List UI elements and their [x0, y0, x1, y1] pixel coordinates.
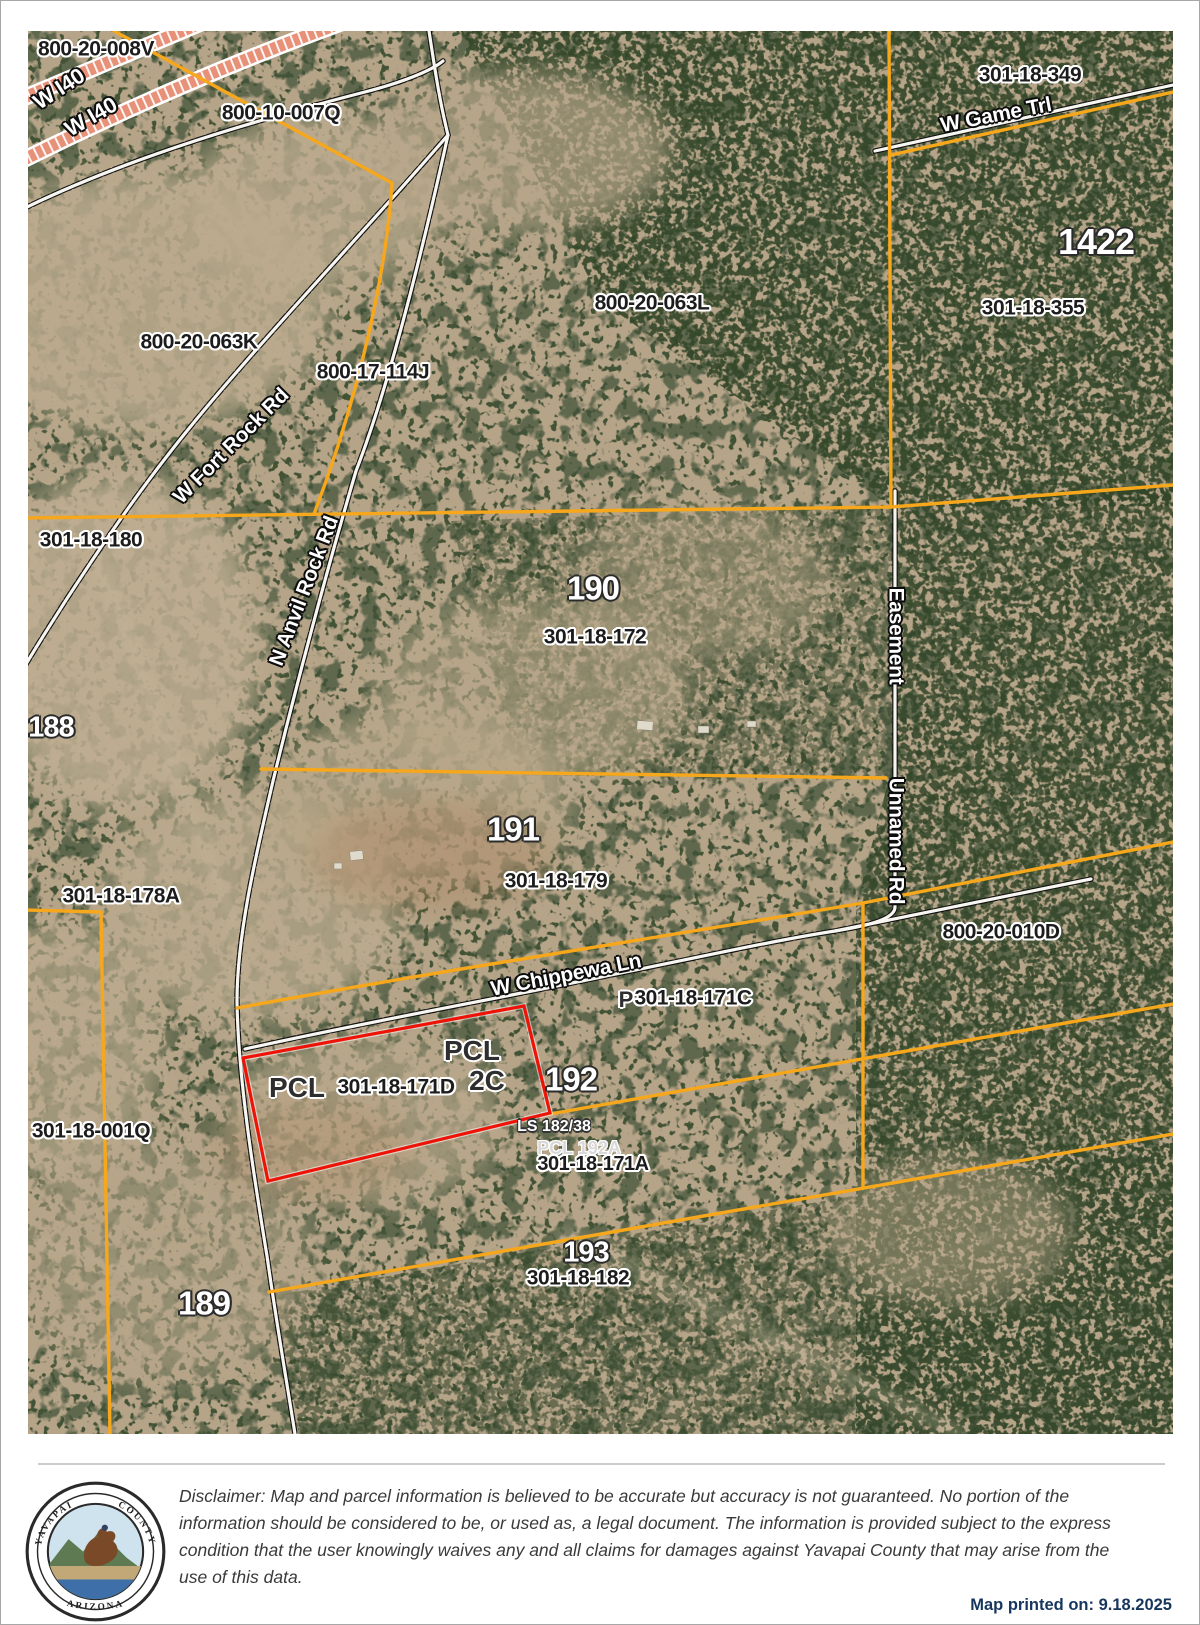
parcel-label-301-18-172: 301-18-172 — [544, 627, 646, 648]
section-label-189: 189 — [178, 1287, 230, 1320]
pcl-label-prefix-p: P — [619, 989, 634, 1011]
section-label-191: 191 — [487, 813, 539, 846]
section-label-1422: 1422 — [1058, 224, 1134, 260]
disclaimer-line-2: information should be considered to be, … — [179, 1510, 1179, 1537]
parcel-label-800-20-008V: 800-20-008V — [38, 39, 154, 60]
section-label-190: 190 — [567, 572, 619, 605]
aerial-basemap — [28, 31, 1173, 1434]
pcl-label-left: PCL — [269, 1074, 325, 1102]
parcel-label-301-18-171C: 301-18-171C — [634, 988, 751, 1009]
pcl-label-tail-2c: 2C — [469, 1067, 505, 1095]
disclaimer-line-1: Disclaimer: Map and parcel information i… — [179, 1483, 1179, 1510]
disclaimer-line-4: use of this data. — [179, 1564, 1179, 1591]
footer-divider — [38, 1463, 1165, 1465]
parcel-label-800-20-063K: 800-20-063K — [140, 332, 257, 353]
parcel-label-301-18-179: 301-18-179 — [505, 871, 607, 892]
road-label-unnamed-rd: Unnamed Rd — [886, 778, 907, 905]
pcl-label-upper: PCL — [444, 1037, 500, 1065]
parcel-label-301-18-180: 301-18-180 — [40, 530, 142, 551]
road-label-easement: Easement — [886, 588, 907, 685]
parcel-label-301-18-349: 301-18-349 — [979, 65, 1081, 86]
parcel-label-301-18-171A: 301-18-171A — [537, 1154, 648, 1174]
parcel-label-301-18-355: 301-18-355 — [982, 298, 1084, 319]
disclaimer-text: Disclaimer: Map and parcel information i… — [179, 1483, 1179, 1591]
parcel-label-800-20-010D: 800-20-010D — [942, 922, 1059, 943]
parcel-label-800-17-114J: 800-17-114J — [317, 362, 429, 383]
parcel-label-301-18-171D: 301-18-171D — [337, 1077, 454, 1098]
yavapai-county-seal-icon: YAVAPAI COUNTY ARIZONA — [23, 1479, 168, 1624]
section-label-188: 188 — [28, 714, 73, 743]
land-split-ref-label: LS 182/38 — [517, 1119, 591, 1135]
map-canvas — [28, 31, 1173, 1434]
section-label-193: 193 — [563, 1239, 608, 1268]
disclaimer-line-3: condition that the user knowingly waives… — [179, 1537, 1179, 1564]
parcel-map-page: 800-20-008V 800-10-007Q 800-20-063K 800-… — [0, 0, 1200, 1625]
parcel-label-800-20-063L: 800-20-063L — [595, 293, 710, 314]
parcel-label-800-10-007Q: 800-10-007Q — [222, 103, 340, 124]
parcel-label-301-18-182: 301-18-182 — [527, 1268, 629, 1289]
section-label-192: 192 — [545, 1063, 597, 1096]
map-printed-date: Map printed on: 9.18.2025 — [970, 1596, 1172, 1615]
parcel-label-301-18-001Q: 301-18-001Q — [32, 1121, 150, 1142]
parcel-label-301-18-178A: 301-18-178A — [62, 886, 179, 907]
